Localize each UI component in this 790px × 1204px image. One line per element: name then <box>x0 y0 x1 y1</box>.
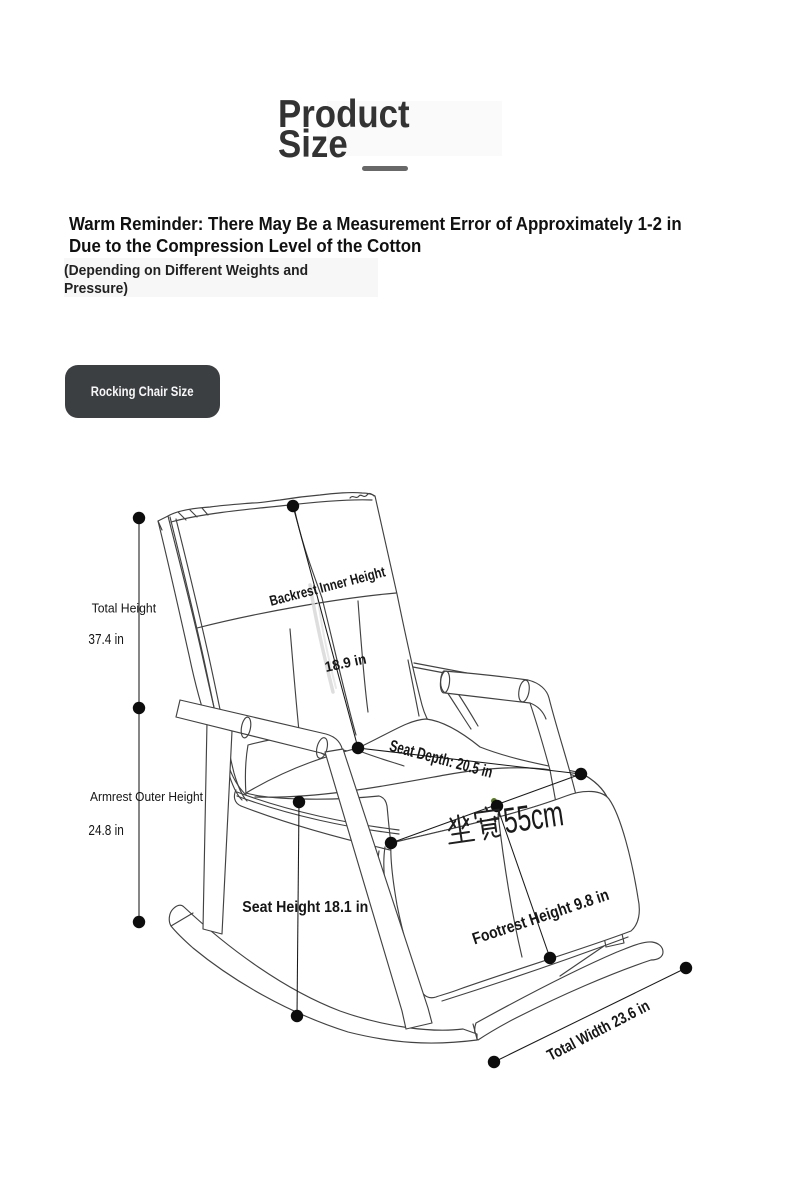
svg-text:37.4 in: 37.4 in <box>88 632 123 648</box>
svg-text:Total Width 23.6 in: Total Width 23.6 in <box>545 998 653 1065</box>
svg-text:Total Height: Total Height <box>92 601 157 616</box>
svg-text:24.8 in: 24.8 in <box>88 823 123 839</box>
svg-text:55cm: 55cm <box>501 792 566 841</box>
svg-text:Seat Height 18.1 in: Seat Height 18.1 in <box>242 899 368 916</box>
svg-text:Armrest Outer Height: Armrest Outer Height <box>90 789 203 804</box>
